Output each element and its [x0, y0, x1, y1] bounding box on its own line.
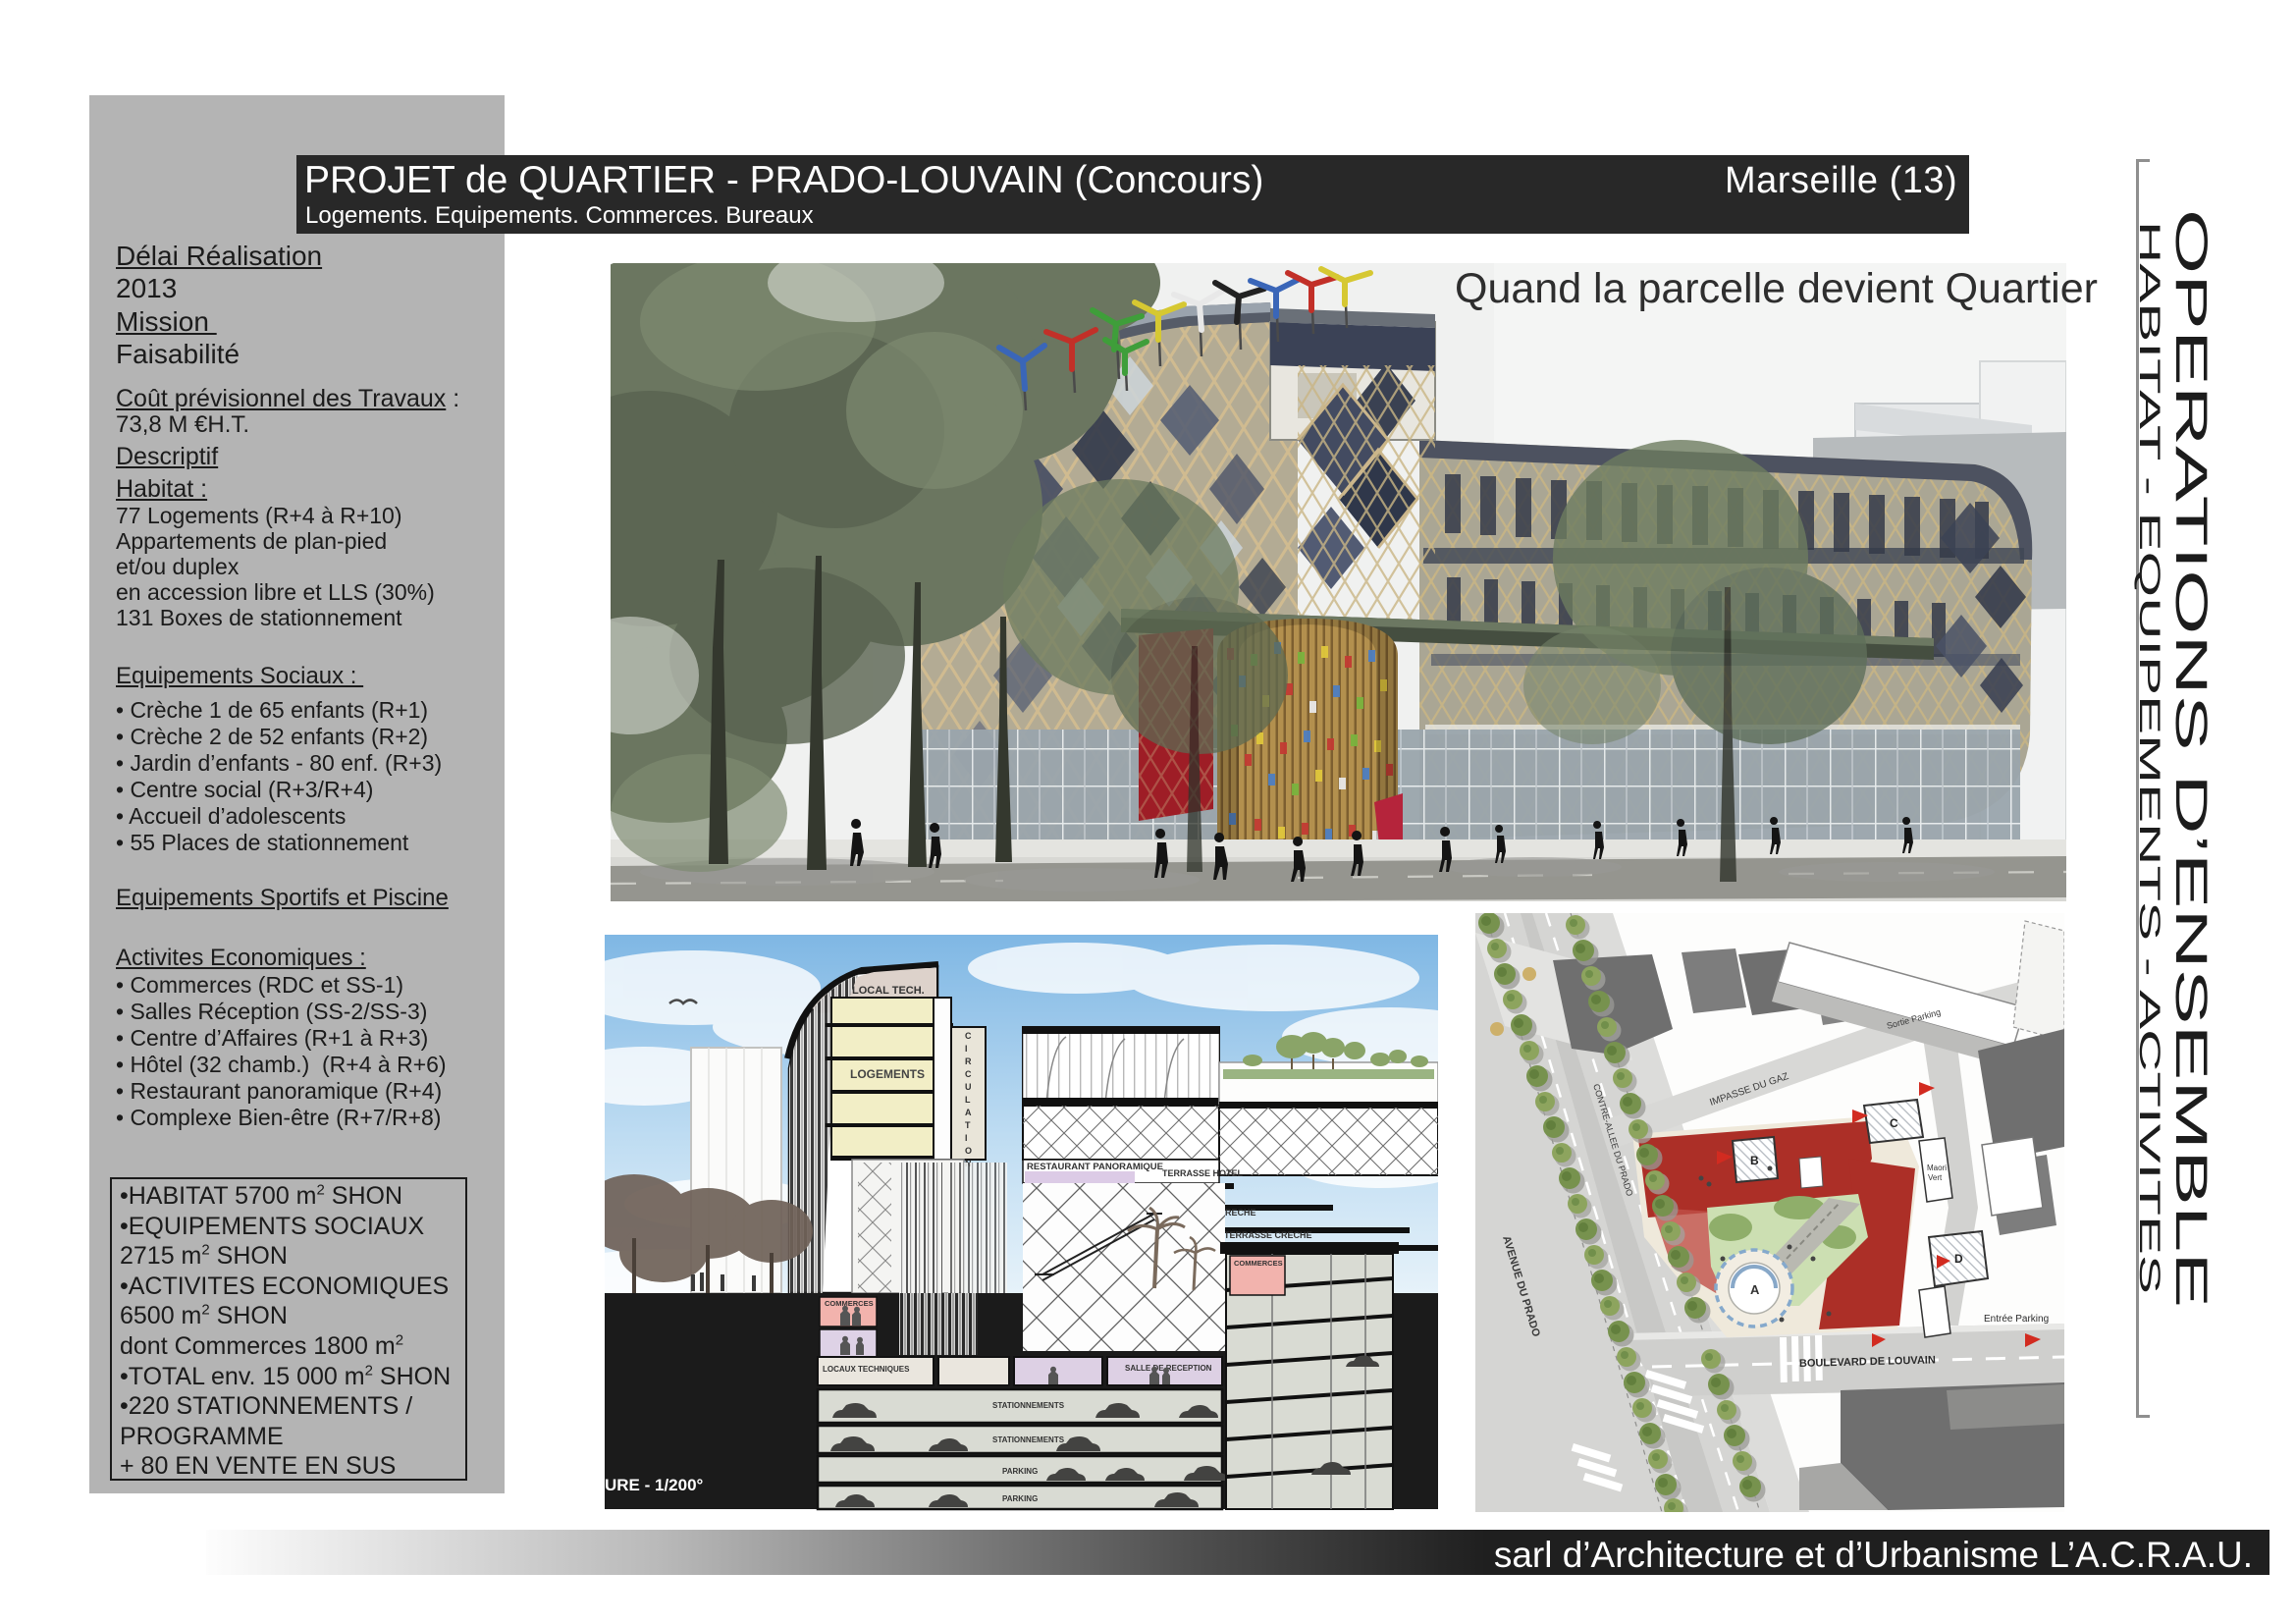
svg-text:COMMERCES: COMMERCES [825, 1299, 874, 1308]
svg-text:A: A [965, 1108, 972, 1117]
svg-text:I: I [965, 1133, 968, 1143]
svg-text:OPERATIONS D’ENSEMBLE: OPERATIONS D’ENSEMBLE [2166, 209, 2216, 1308]
svg-text:U: U [965, 1082, 972, 1092]
svg-text:PARKING: PARKING [1002, 1494, 1038, 1503]
svg-text:STATIONNEMENTS: STATIONNEMENTS [992, 1435, 1065, 1444]
svg-text:LOGEMENTS: LOGEMENTS [850, 1067, 925, 1081]
svg-text:C: C [1890, 1116, 1898, 1130]
svg-text:RESTAURANT PANORAMIQUE: RESTAURANT PANORAMIQUE [1027, 1162, 1163, 1172]
svg-text:LOCAL TECH.: LOCAL TECH. [852, 985, 925, 997]
svg-text:T: T [965, 1120, 971, 1130]
svg-text:C: C [965, 1069, 972, 1079]
svg-text:TERRASSE CRECHE: TERRASSE CRECHE [1224, 1230, 1312, 1240]
svg-text:Vert: Vert [1928, 1173, 1943, 1182]
svg-text:Maori: Maori [1927, 1164, 1947, 1172]
svg-text:LOCAUX TECHNIQUES: LOCAUX TECHNIQUES [823, 1365, 910, 1374]
svg-text:O: O [965, 1146, 972, 1156]
svg-text:L: L [965, 1095, 971, 1105]
svg-text:Entrée Parking: Entrée Parking [1984, 1314, 2049, 1325]
svg-text:URE - 1/200°: URE - 1/200° [605, 1476, 704, 1494]
svg-text:A: A [1750, 1282, 1760, 1297]
svg-text:STATIONNEMENTS: STATIONNEMENTS [992, 1401, 1065, 1410]
svg-text:D: D [1954, 1252, 1963, 1266]
svg-text:TERRASSE HOTEL: TERRASSE HOTEL [1162, 1168, 1244, 1178]
svg-text:R: R [965, 1056, 972, 1066]
svg-text:I: I [965, 1044, 968, 1054]
svg-text:B: B [1750, 1154, 1759, 1167]
svg-text:C: C [965, 1031, 972, 1041]
svg-text:COMMERCES: COMMERCES [1234, 1259, 1283, 1268]
svg-text:PARKING: PARKING [1002, 1467, 1038, 1476]
svg-text:HABITAT - EQUIPEMENTS - ACTIVI: HABITAT - EQUIPEMENTS - ACTIVITES [2133, 221, 2165, 1294]
